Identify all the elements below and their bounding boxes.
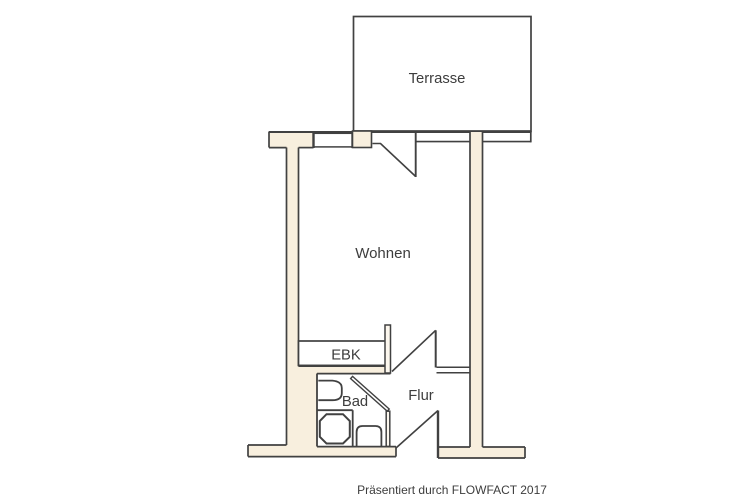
svg-text:Wohnen: Wohnen (355, 245, 411, 262)
svg-text:EBK: EBK (331, 348, 361, 364)
svg-text:Terrasse: Terrasse (409, 71, 466, 87)
svg-text:Präsentiert durch FLOWFACT 201: Präsentiert durch FLOWFACT 2017 (357, 483, 547, 497)
svg-text:Flur: Flur (408, 388, 434, 404)
svg-text:Bad: Bad (342, 394, 368, 410)
